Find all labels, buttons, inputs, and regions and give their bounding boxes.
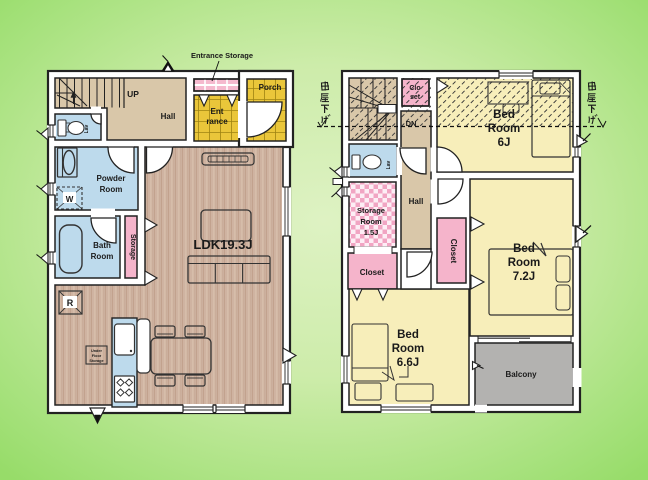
svg-text:1.5J: 1.5J	[364, 228, 379, 237]
svg-text:6J: 6J	[498, 137, 511, 149]
svg-text:Clo: Clo	[409, 85, 420, 92]
svg-text:Room: Room	[392, 343, 425, 355]
svg-text:Powder: Powder	[97, 174, 126, 183]
svg-text:Room: Room	[488, 123, 521, 135]
svg-text:Closet: Closet	[360, 268, 385, 277]
svg-text:Room: Room	[508, 257, 541, 269]
svg-text:Bed: Bed	[397, 329, 419, 341]
svg-text:Room: Room	[100, 185, 123, 194]
svg-text:7.2J: 7.2J	[513, 271, 535, 283]
svg-text:Floor: Floor	[92, 354, 102, 358]
svg-text:Storage: Storage	[89, 359, 103, 363]
svg-text:W: W	[66, 195, 74, 204]
svg-text:rance: rance	[206, 117, 228, 126]
svg-text:Lav: Lav	[386, 160, 392, 169]
svg-text:Closet: Closet	[449, 239, 458, 264]
svg-text:R: R	[67, 298, 74, 308]
svg-text:Bath: Bath	[93, 241, 111, 250]
svg-text:6.6J: 6.6J	[397, 357, 419, 369]
svg-text:Storage: Storage	[129, 234, 136, 260]
svg-text:Under: Under	[91, 349, 102, 353]
svg-text:Bed: Bed	[493, 109, 515, 121]
svg-text:Porch: Porch	[259, 83, 282, 92]
svg-text:Lav: Lav	[84, 124, 90, 133]
svg-text:Hall: Hall	[161, 112, 176, 121]
svg-text:Room: Room	[360, 217, 382, 226]
svg-text:LDK19.3J: LDK19.3J	[193, 237, 252, 252]
svg-text:set: set	[410, 94, 421, 101]
svg-text:UP: UP	[127, 89, 139, 99]
svg-text:Balcony: Balcony	[505, 370, 537, 379]
svg-text:Entrance Storage: Entrance Storage	[191, 51, 253, 60]
svg-text:Hall: Hall	[409, 197, 424, 206]
svg-text:Bed: Bed	[513, 243, 535, 255]
svg-text:Ent: Ent	[211, 107, 224, 116]
svg-text:Room: Room	[91, 252, 114, 261]
svg-text:Storage: Storage	[357, 206, 385, 215]
